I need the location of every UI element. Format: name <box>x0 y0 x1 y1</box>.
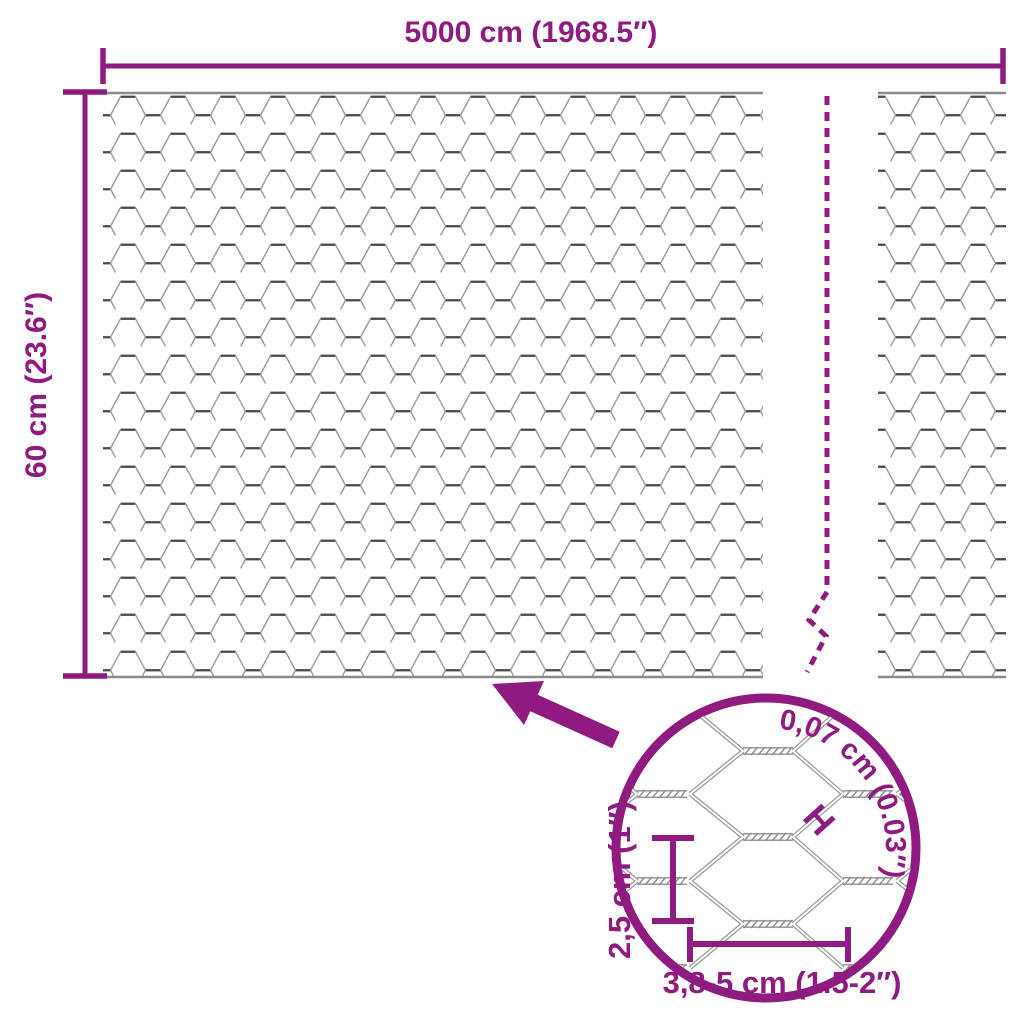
break-dashed-line <box>807 96 827 672</box>
height-dimension-label: 60 cm (23.6″) <box>20 292 53 478</box>
height-dimension: 60 cm (23.6″) <box>20 92 107 676</box>
mesh-roll <box>103 92 1006 678</box>
detail-lens: 2,5 cm (1″) 3,8-5 cm (1.5-2″) 0,07 cm (0… <box>586 698 950 1000</box>
lens-circle <box>616 698 916 998</box>
mesh-panel-left <box>103 92 763 678</box>
zoom-arrow-icon <box>492 681 620 748</box>
width-dimension-label: 5000 cm (1968.5″) <box>405 16 658 49</box>
mesh-height-label: 2,5 cm (1″) <box>602 801 637 959</box>
width-dimension: 5000 cm (1968.5″) <box>103 16 1003 84</box>
mesh-width-label: 3,8-5 cm (1.5-2″) <box>663 965 902 1000</box>
mesh-panel-right <box>878 92 1006 678</box>
diagram-svg: 5000 cm (1968.5″) 60 cm (23.6″) <box>0 0 1024 1024</box>
product-dimension-diagram: 5000 cm (1968.5″) 60 cm (23.6″) <box>0 0 1024 1024</box>
